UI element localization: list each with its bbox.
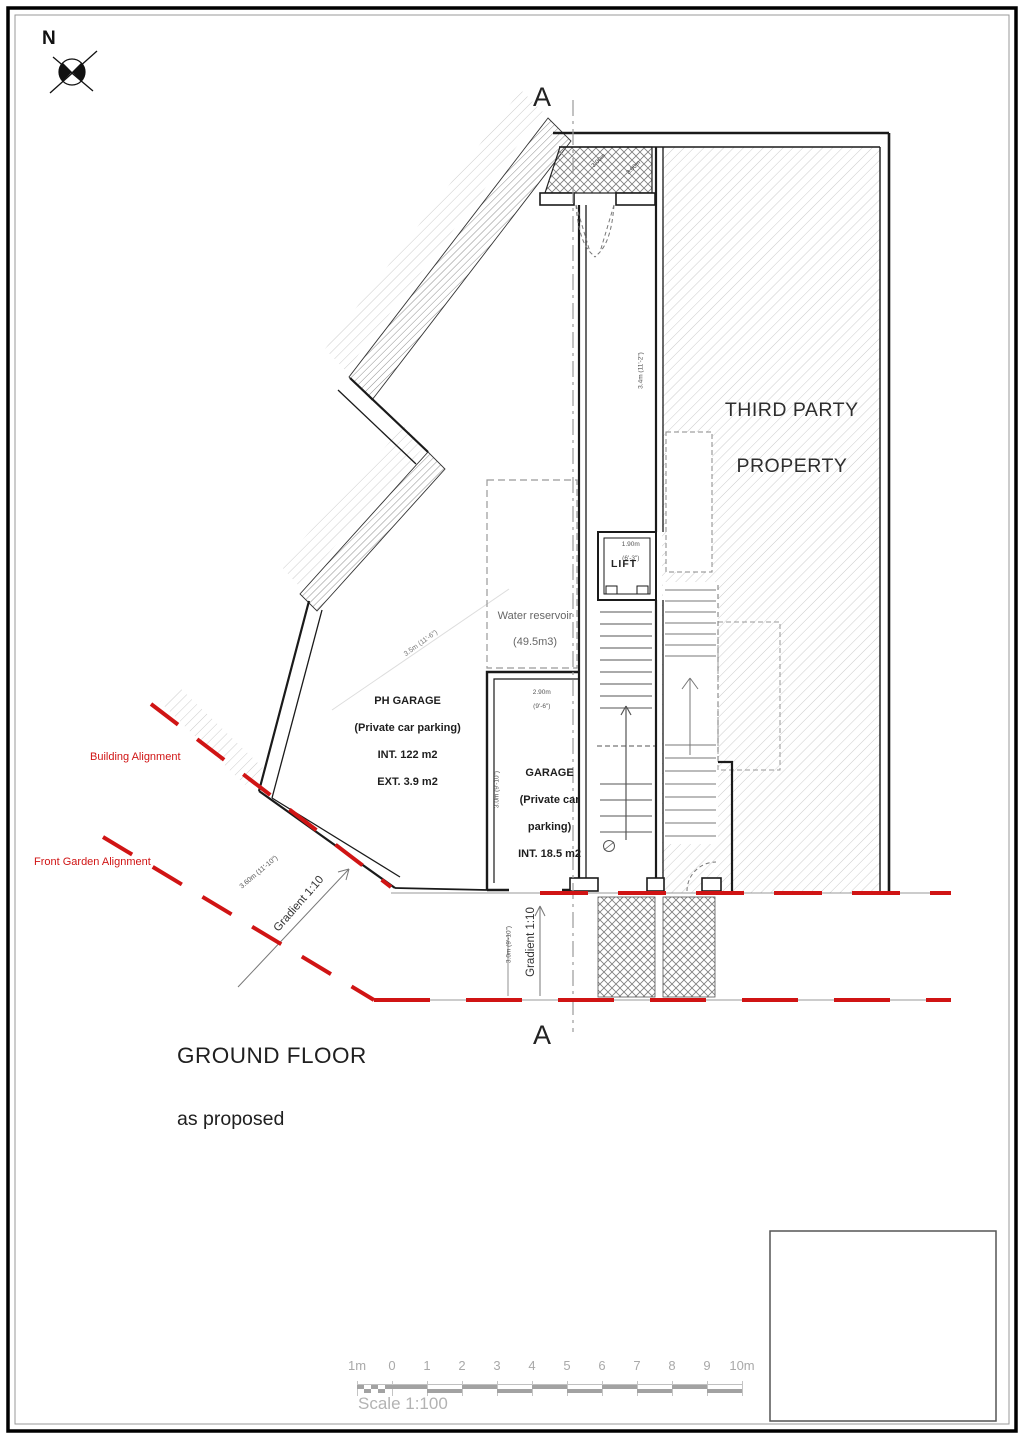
building-alignment-label: Building Alignment — [90, 751, 181, 763]
garage-dim-ft: (9'-6") — [533, 703, 550, 710]
ph-garage-line2: (Private car parking) — [354, 722, 460, 734]
scalebar-tick: 2 — [458, 1358, 465, 1373]
drawing-title-line1: GROUND FLOOR — [177, 1043, 367, 1069]
garage-label: GARAGE (Private car parking) INT. 18.5 m… — [489, 753, 604, 861]
lift-dim-m: 1.90m — [622, 541, 640, 548]
third-party-line2: PROPERTY — [736, 455, 847, 477]
scalebar-tick-labels: 1m 0 1 2 3 4 5 6 7 8 9 10m — [350, 1358, 762, 1378]
ph-garage-line1: PH GARAGE — [374, 695, 441, 707]
scalebar-tick: 7 — [633, 1358, 640, 1373]
garage-dim-m: 2.90m — [533, 689, 551, 696]
garage-line1: GARAGE — [525, 767, 573, 779]
section-marker-top: A — [533, 82, 551, 113]
gradient-label-right: Gradient 1:10 — [525, 900, 537, 984]
scalebar-tick: 9 — [703, 1358, 710, 1373]
ph-garage-line4: EXT. 3.9 m2 — [377, 776, 438, 788]
garage-line3: parking) — [528, 821, 571, 833]
drawing-title-line2: as proposed — [177, 1108, 367, 1131]
scalebar-tick: 3 — [493, 1358, 500, 1373]
title-block — [770, 1231, 996, 1421]
scalebar-tick: 10m — [729, 1358, 754, 1373]
ph-garage-line3: INT. 122 m2 — [378, 749, 438, 761]
water-line1: Water reservoir — [498, 610, 573, 622]
ramps — [598, 897, 715, 997]
staircase-1 — [597, 612, 655, 852]
garage-line4: INT. 18.5 m2 — [518, 848, 581, 860]
garage-width-dimension: 2.90m (9'-6") — [512, 682, 568, 710]
scale-text: Scale 1:100 — [358, 1394, 448, 1414]
lift-dimension: 1.90m (6'-3") — [604, 534, 654, 562]
ramp-dimension: 3.0m (9'-10") — [506, 920, 513, 970]
scalebar-tick: 4 — [528, 1358, 535, 1373]
floor-plan-sheet: N A A THIRD PARTY PROPERTY Water reservo… — [0, 0, 1024, 1439]
third-party-property-label: THIRD PARTY PROPERTY — [676, 368, 896, 480]
scalebar-tick: 8 — [668, 1358, 675, 1373]
water-reservoir-label: Water reservoir (49.5m3) — [466, 597, 598, 649]
scalebar-tick: 5 — [563, 1358, 570, 1373]
entrance-doors — [576, 205, 614, 257]
corridor-dimension: 3.4m (11'-2") — [638, 351, 645, 391]
front-garden-alignment-label: Front Garden Alignment — [34, 856, 151, 868]
north-arrow-icon — [50, 51, 97, 93]
north-label: N — [42, 28, 56, 50]
scalebar — [357, 1384, 742, 1393]
scalebar-tick: 1 — [423, 1358, 430, 1373]
water-line2: (49.5m3) — [513, 636, 557, 648]
drawing-title: GROUND FLOOR as proposed — [177, 1007, 367, 1149]
garage-depth-dimension: 3.0m (9'-10") — [494, 770, 501, 810]
third-party-line1: THIRD PARTY — [725, 399, 859, 421]
section-marker-bottom: A — [533, 1020, 551, 1051]
scalebar-tick: 1m — [348, 1358, 366, 1373]
scalebar-tick: 6 — [598, 1358, 605, 1373]
scalebar-tick: 0 — [388, 1358, 395, 1373]
plan-linework — [0, 0, 1024, 1439]
lift-dim-ft: (6'-3") — [622, 555, 639, 562]
ph-garage-label: PH GARAGE (Private car parking) INT. 122… — [332, 681, 477, 789]
garage-line2: (Private car — [520, 794, 580, 806]
